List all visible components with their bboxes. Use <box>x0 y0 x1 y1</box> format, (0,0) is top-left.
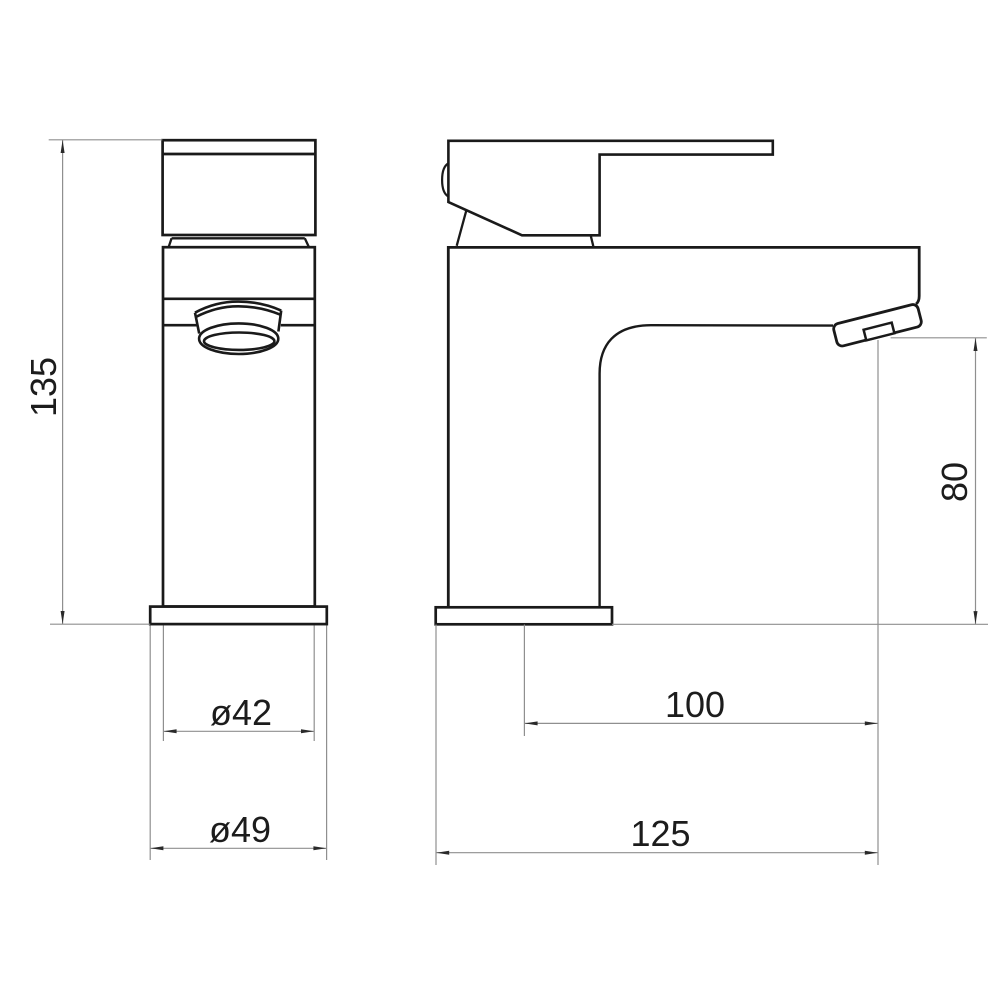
svg-text:80: 80 <box>934 462 975 502</box>
svg-text:135: 135 <box>23 357 64 417</box>
svg-text:ø42: ø42 <box>210 692 272 733</box>
svg-text:100: 100 <box>665 684 725 725</box>
svg-text:ø49: ø49 <box>209 809 271 850</box>
svg-text:125: 125 <box>630 813 690 854</box>
